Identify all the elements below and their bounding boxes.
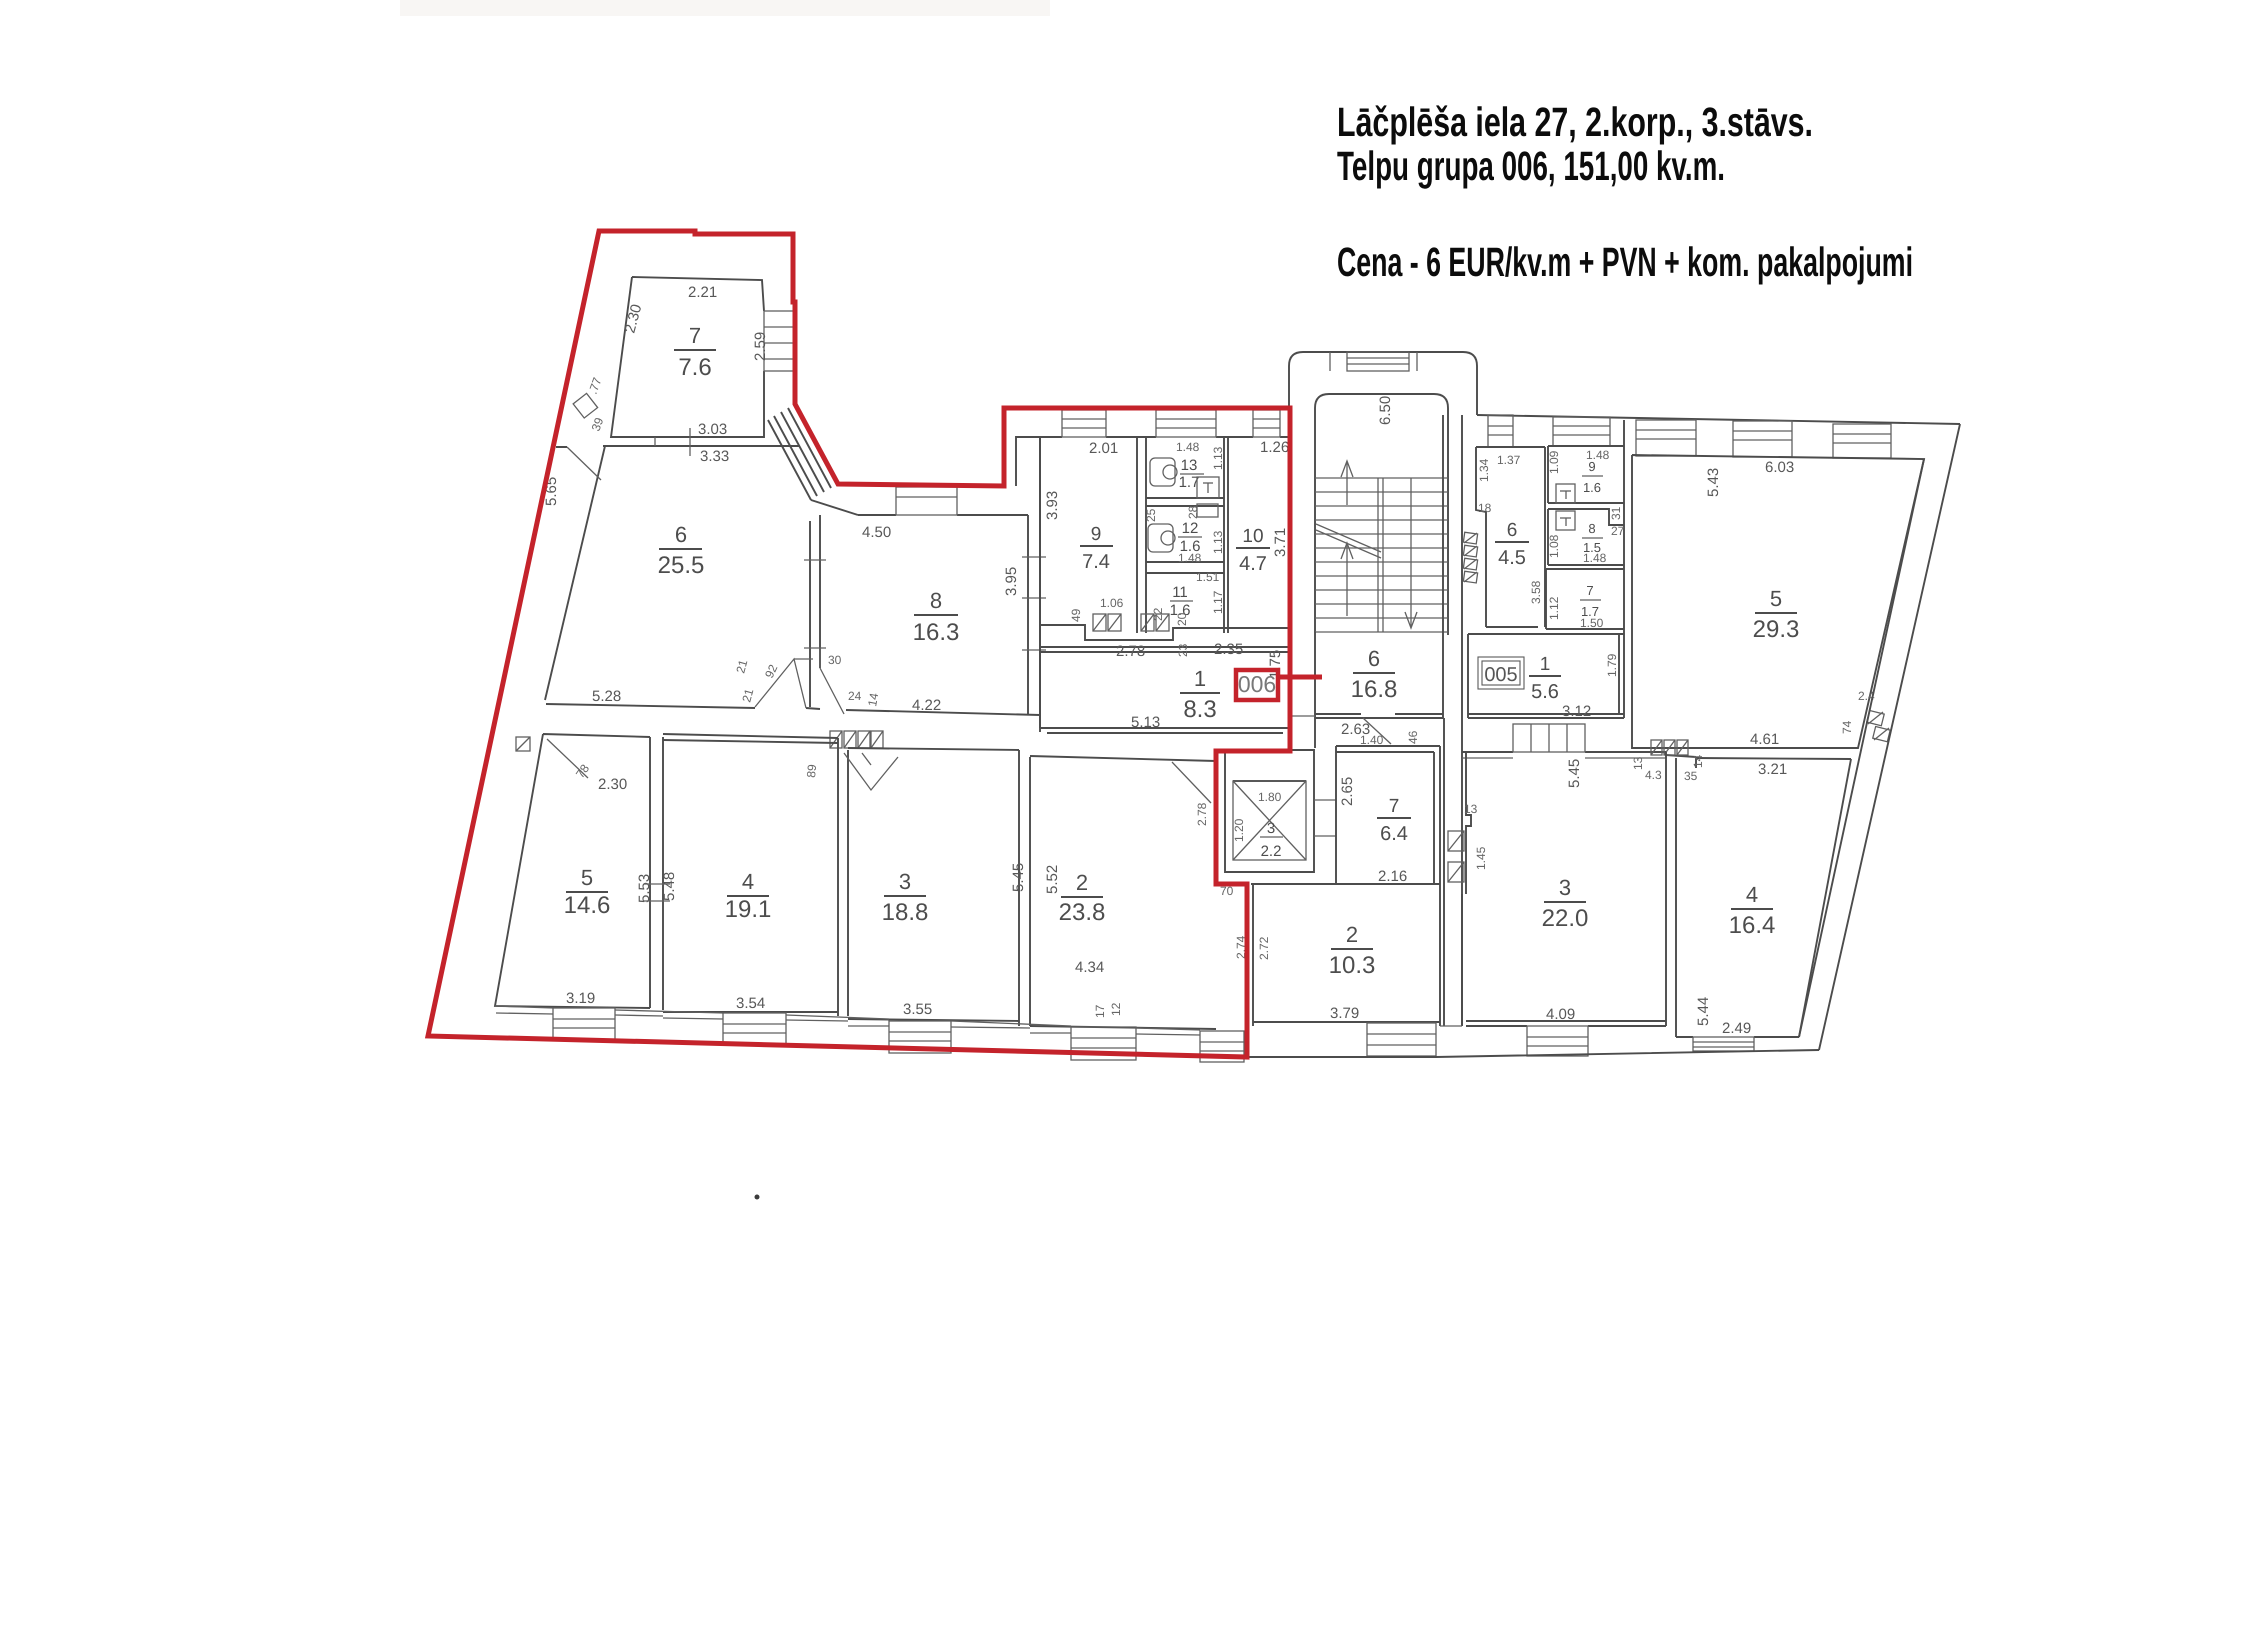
svg-text:28: 28 bbox=[1186, 505, 1200, 519]
svg-text:6.50: 6.50 bbox=[1377, 396, 1394, 425]
svg-text:4.61: 4.61 bbox=[1750, 731, 1779, 748]
svg-text:2: 2 bbox=[1076, 870, 1088, 895]
svg-text:16.8: 16.8 bbox=[1351, 676, 1398, 703]
svg-text:8.3: 8.3 bbox=[1183, 696, 1216, 723]
svg-text:1.09: 1.09 bbox=[1547, 450, 1561, 474]
svg-text:3.58: 3.58 bbox=[1529, 580, 1543, 604]
svg-text:23: 23 bbox=[1176, 643, 1190, 657]
svg-text:5: 5 bbox=[1770, 586, 1782, 611]
svg-text:4.09: 4.09 bbox=[1546, 1006, 1575, 1023]
svg-text:18: 18 bbox=[1478, 501, 1492, 515]
svg-text:21: 21 bbox=[733, 658, 750, 675]
svg-text:2.65: 2.65 bbox=[1339, 777, 1356, 806]
svg-text:12: 12 bbox=[1182, 520, 1199, 537]
svg-text:6: 6 bbox=[1368, 646, 1380, 671]
svg-text:89: 89 bbox=[804, 763, 819, 778]
svg-text:5.43: 5.43 bbox=[1705, 468, 1722, 497]
svg-text:7.4: 7.4 bbox=[1082, 551, 1110, 573]
svg-text:3.93: 3.93 bbox=[1044, 491, 1061, 520]
svg-text:2.72: 2.72 bbox=[1257, 936, 1271, 960]
svg-text:13: 13 bbox=[1631, 756, 1645, 770]
svg-text:23.8: 23.8 bbox=[1059, 899, 1106, 926]
svg-text:2.63: 2.63 bbox=[1341, 721, 1370, 738]
svg-text:2.59: 2.59 bbox=[752, 332, 769, 361]
svg-text:16.3: 16.3 bbox=[913, 619, 960, 646]
svg-text:4: 4 bbox=[1746, 882, 1758, 907]
svg-text:1.17: 1.17 bbox=[1211, 590, 1225, 614]
svg-text:29.3: 29.3 bbox=[1753, 616, 1800, 643]
svg-text:2: 2 bbox=[1346, 922, 1358, 947]
svg-text:14.6: 14.6 bbox=[564, 892, 611, 919]
svg-text:46: 46 bbox=[1406, 730, 1420, 744]
svg-text:1.7: 1.7 bbox=[1179, 474, 1200, 491]
svg-text:005: 005 bbox=[1484, 664, 1517, 686]
svg-text:4.50: 4.50 bbox=[862, 524, 891, 541]
svg-text:1.26: 1.26 bbox=[1260, 439, 1289, 456]
svg-text:6.03: 6.03 bbox=[1765, 459, 1794, 476]
svg-text:1.6: 1.6 bbox=[1583, 480, 1601, 495]
svg-text:18.8: 18.8 bbox=[882, 899, 929, 926]
svg-text:3.54: 3.54 bbox=[736, 995, 765, 1012]
svg-text:14: 14 bbox=[865, 692, 881, 708]
svg-text:.77: .77 bbox=[586, 375, 605, 396]
svg-text:3: 3 bbox=[899, 869, 911, 894]
svg-text:1.48: 1.48 bbox=[1178, 551, 1202, 565]
svg-text:7: 7 bbox=[1586, 583, 1593, 598]
svg-text:78: 78 bbox=[573, 761, 592, 780]
svg-text:4.22: 4.22 bbox=[912, 697, 941, 714]
svg-text:7: 7 bbox=[689, 323, 701, 348]
svg-text:1.12: 1.12 bbox=[1547, 596, 1561, 620]
svg-text:1.50: 1.50 bbox=[1580, 616, 1604, 630]
svg-text:5.13: 5.13 bbox=[1131, 714, 1160, 731]
svg-text:2.16: 2.16 bbox=[1378, 868, 1407, 885]
svg-text:3.03: 3.03 bbox=[698, 421, 727, 438]
svg-text:4.7: 4.7 bbox=[1239, 553, 1267, 575]
svg-text:006: 006 bbox=[1238, 671, 1276, 697]
svg-text:25: 25 bbox=[1144, 508, 1158, 522]
svg-text:3.95: 3.95 bbox=[1003, 567, 1020, 596]
svg-text:19.1: 19.1 bbox=[725, 896, 772, 923]
svg-text:9: 9 bbox=[1091, 524, 1102, 545]
svg-text:3.21: 3.21 bbox=[1758, 761, 1787, 778]
svg-text:5: 5 bbox=[581, 865, 593, 890]
svg-text:1: 1 bbox=[1194, 666, 1206, 691]
svg-text:11: 11 bbox=[1172, 584, 1188, 601]
svg-text:22.0: 22.0 bbox=[1542, 905, 1589, 932]
svg-text:3.79: 3.79 bbox=[1330, 1005, 1359, 1022]
svg-text:3: 3 bbox=[1559, 875, 1571, 900]
svg-text:35: 35 bbox=[1684, 769, 1698, 783]
svg-text:10: 10 bbox=[1242, 526, 1263, 547]
svg-text:31: 31 bbox=[1609, 506, 1623, 520]
svg-text:6: 6 bbox=[675, 522, 687, 547]
svg-text:5.52: 5.52 bbox=[1044, 865, 1061, 894]
svg-text:1.08: 1.08 bbox=[1547, 534, 1561, 558]
svg-text:3.33: 3.33 bbox=[700, 448, 729, 465]
svg-text:4.5: 4.5 bbox=[1498, 547, 1526, 569]
svg-text:3.71: 3.71 bbox=[1272, 528, 1289, 557]
svg-text:3: 3 bbox=[1267, 820, 1275, 837]
svg-text:74: 74 bbox=[1840, 720, 1854, 734]
svg-text:12: 12 bbox=[1109, 1002, 1123, 1016]
svg-text:5.6: 5.6 bbox=[1531, 681, 1559, 703]
svg-text:8: 8 bbox=[1588, 521, 1595, 536]
svg-text:13: 13 bbox=[1181, 457, 1198, 474]
svg-text:2.78: 2.78 bbox=[1116, 643, 1145, 660]
svg-text:24: 24 bbox=[848, 689, 862, 703]
svg-text:49: 49 bbox=[1069, 608, 1083, 622]
svg-text:30: 30 bbox=[828, 653, 842, 667]
svg-text:6.4: 6.4 bbox=[1380, 823, 1408, 845]
svg-text:13: 13 bbox=[1464, 802, 1478, 816]
svg-text:14: 14 bbox=[1691, 754, 1705, 768]
svg-text:7: 7 bbox=[1389, 796, 1400, 817]
svg-text:Telpu grupa 006, 151,00 kv.m.: Telpu grupa 006, 151,00 kv.m. bbox=[1337, 143, 1725, 189]
svg-text:27: 27 bbox=[1611, 524, 1625, 538]
svg-text:2.21: 2.21 bbox=[688, 284, 717, 301]
svg-text:4.3: 4.3 bbox=[1645, 768, 1662, 782]
svg-text:5.53: 5.53 bbox=[636, 874, 653, 903]
svg-text:20: 20 bbox=[1175, 612, 1189, 626]
svg-text:1.34: 1.34 bbox=[1477, 458, 1491, 482]
svg-text:5.45: 5.45 bbox=[1010, 863, 1027, 892]
svg-text:6: 6 bbox=[1507, 520, 1518, 541]
svg-text:3.12: 3.12 bbox=[1562, 703, 1591, 720]
svg-text:2.35: 2.35 bbox=[1214, 641, 1243, 658]
svg-text:1.13: 1.13 bbox=[1211, 530, 1225, 554]
svg-text:10.3: 10.3 bbox=[1329, 952, 1376, 979]
svg-text:1.48: 1.48 bbox=[1176, 440, 1200, 454]
svg-text:8: 8 bbox=[930, 588, 942, 613]
svg-text:1.79: 1.79 bbox=[1605, 653, 1619, 677]
svg-text:1.13: 1.13 bbox=[1211, 446, 1225, 470]
svg-text:5.45: 5.45 bbox=[1566, 759, 1583, 788]
svg-text:Lāčplēša iela 27, 2.korp., 3.s: Lāčplēša iela 27, 2.korp., 3.stāvs. bbox=[1337, 99, 1813, 145]
svg-text:3.55: 3.55 bbox=[903, 1001, 932, 1018]
svg-text:4: 4 bbox=[742, 869, 754, 894]
svg-text:1.20: 1.20 bbox=[1232, 818, 1246, 842]
svg-text:7.6: 7.6 bbox=[678, 354, 711, 381]
svg-text:2.78: 2.78 bbox=[1195, 802, 1209, 826]
svg-text:5.28: 5.28 bbox=[592, 688, 621, 705]
svg-text:5.44: 5.44 bbox=[1695, 997, 1712, 1026]
svg-text:17: 17 bbox=[1093, 1004, 1107, 1018]
svg-text:1.37: 1.37 bbox=[1497, 453, 1521, 467]
svg-text:2.49: 2.49 bbox=[1722, 1020, 1751, 1037]
svg-text:Cena - 6 EUR/kv.m + PVN + kom.: Cena - 6 EUR/kv.m + PVN + kom. pakalpoju… bbox=[1337, 239, 1913, 285]
svg-text:1.80: 1.80 bbox=[1258, 790, 1282, 804]
svg-text:16.4: 16.4 bbox=[1729, 912, 1776, 939]
svg-text:92: 92 bbox=[762, 662, 780, 680]
svg-text:1.48: 1.48 bbox=[1586, 448, 1610, 462]
svg-text:1.06: 1.06 bbox=[1100, 596, 1124, 610]
svg-text:2.30: 2.30 bbox=[598, 776, 627, 793]
svg-text:3.19: 3.19 bbox=[566, 990, 595, 1007]
svg-text:21: 21 bbox=[739, 687, 756, 704]
svg-text:1.45: 1.45 bbox=[1474, 846, 1488, 870]
svg-text:39: 39 bbox=[589, 415, 607, 433]
svg-text:5.48: 5.48 bbox=[661, 872, 678, 901]
svg-text:4.34: 4.34 bbox=[1075, 959, 1104, 976]
svg-text:2.2: 2.2 bbox=[1261, 843, 1282, 860]
svg-text:1: 1 bbox=[1540, 654, 1551, 675]
svg-text:2.30: 2.30 bbox=[621, 302, 645, 335]
svg-text:25.5: 25.5 bbox=[658, 552, 705, 579]
svg-text:1.51: 1.51 bbox=[1196, 570, 1220, 584]
svg-text:2.01: 2.01 bbox=[1089, 440, 1118, 457]
svg-text:1.48: 1.48 bbox=[1583, 551, 1607, 565]
